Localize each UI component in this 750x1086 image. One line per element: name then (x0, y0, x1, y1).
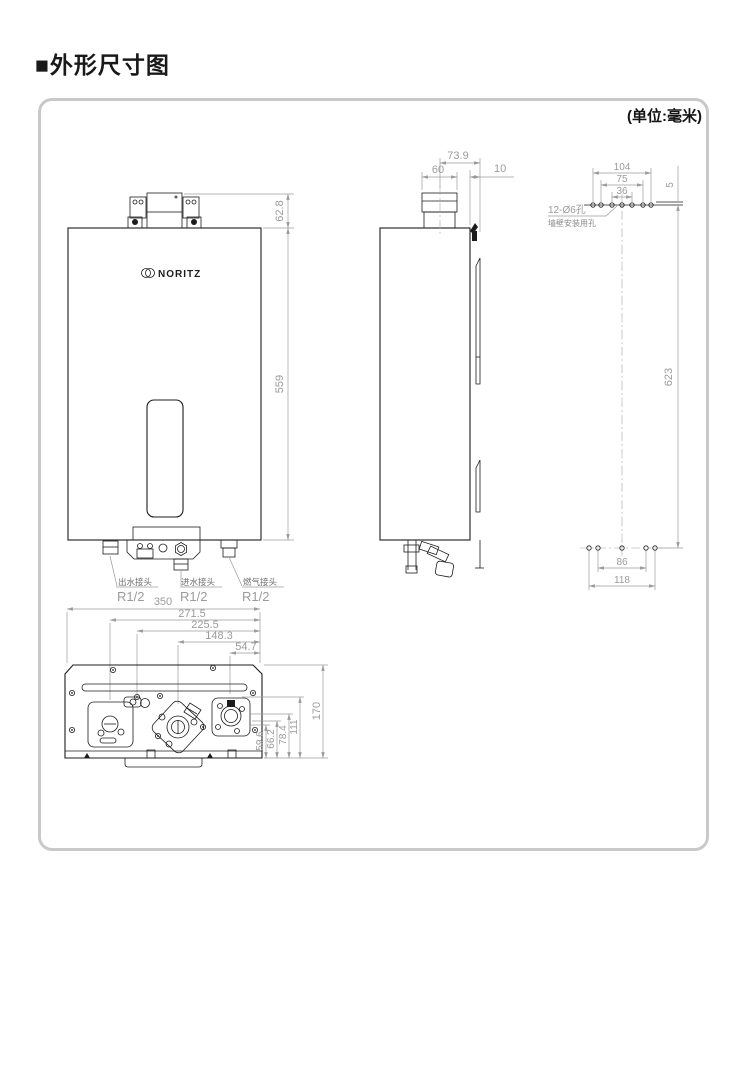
rear-width-104: 104 (614, 162, 631, 173)
depth-66-2: 66.2 (266, 729, 277, 749)
gas-label: 燃气接头 (243, 577, 278, 587)
outlet-label: 出水接头 (118, 577, 153, 587)
inlet-thread: R1/2 (180, 589, 207, 604)
hole-note-line1: 12-Ø6孔 (548, 204, 586, 216)
rear-width-118: 118 (614, 575, 630, 586)
dimension-drawing: NORITZ 出水接头 R1/2 进水接头 R1/2 (0, 0, 750, 1086)
depth-111: 111 (289, 719, 300, 735)
rear-width-36: 36 (616, 186, 628, 197)
flue-width-dim: 60 (432, 164, 444, 176)
noritz-logo: NORITZ (142, 269, 202, 281)
rear-bottom-dimensions: 86 118 (589, 551, 655, 590)
brand-text: NORITZ (158, 269, 201, 280)
rear-width-86: 86 (616, 557, 628, 568)
depth-59-6: 59.6 (255, 731, 266, 751)
hole-note-line2: 墙壁安装用孔 (548, 218, 596, 228)
width-54-7: 54.7 (235, 641, 256, 653)
hole-note: 12-Ø6孔 墙壁安装用孔 (548, 204, 617, 228)
bottom-depth-dimensions: 59.6 66.2 78.4 111 170 (242, 665, 328, 758)
flue-offset-dim: 73.9 (447, 150, 468, 162)
width-350: 350 (154, 596, 172, 608)
width-148-3: 148.3 (205, 630, 233, 642)
rear-edge-gap-dim: 5 (665, 182, 676, 188)
bottom-view: 350 271.5 225.5 148.3 54.7 (65, 596, 328, 767)
hole-span-dim: 623 (663, 368, 675, 386)
front-dimensions: 62.8 559 (184, 194, 294, 540)
rear-top-dimensions: 104 75 36 5 (593, 162, 678, 203)
depth-78-4: 78.4 (278, 725, 289, 745)
depth-170: 170 (311, 702, 323, 720)
bottom-width-dimensions: 350 271.5 225.5 148.3 54.7 (67, 596, 260, 704)
wall-gap-dim: 10 (494, 163, 506, 175)
inlet-label: 进水接头 (181, 577, 216, 587)
front-view: NORITZ 出水接头 R1/2 进水接头 R1/2 (68, 193, 294, 604)
bracket-height-dim: 62.8 (274, 200, 286, 221)
rear-view: 12-Ø6孔 墙壁安装用孔 104 75 36 5 623 (548, 162, 683, 590)
rear-width-75: 75 (616, 174, 628, 185)
side-dimensions: 73.9 60 10 (422, 150, 514, 232)
gas-thread: R1/2 (242, 589, 269, 604)
body-height-dim: 559 (274, 375, 286, 393)
side-view: 73.9 60 10 (380, 150, 514, 577)
connection-labels: 出水接头 R1/2 进水接头 R1/2 燃气接头 R1/2 (110, 556, 284, 604)
rear-height-dimension: 623 (658, 205, 683, 548)
outlet-thread: R1/2 (117, 589, 144, 604)
